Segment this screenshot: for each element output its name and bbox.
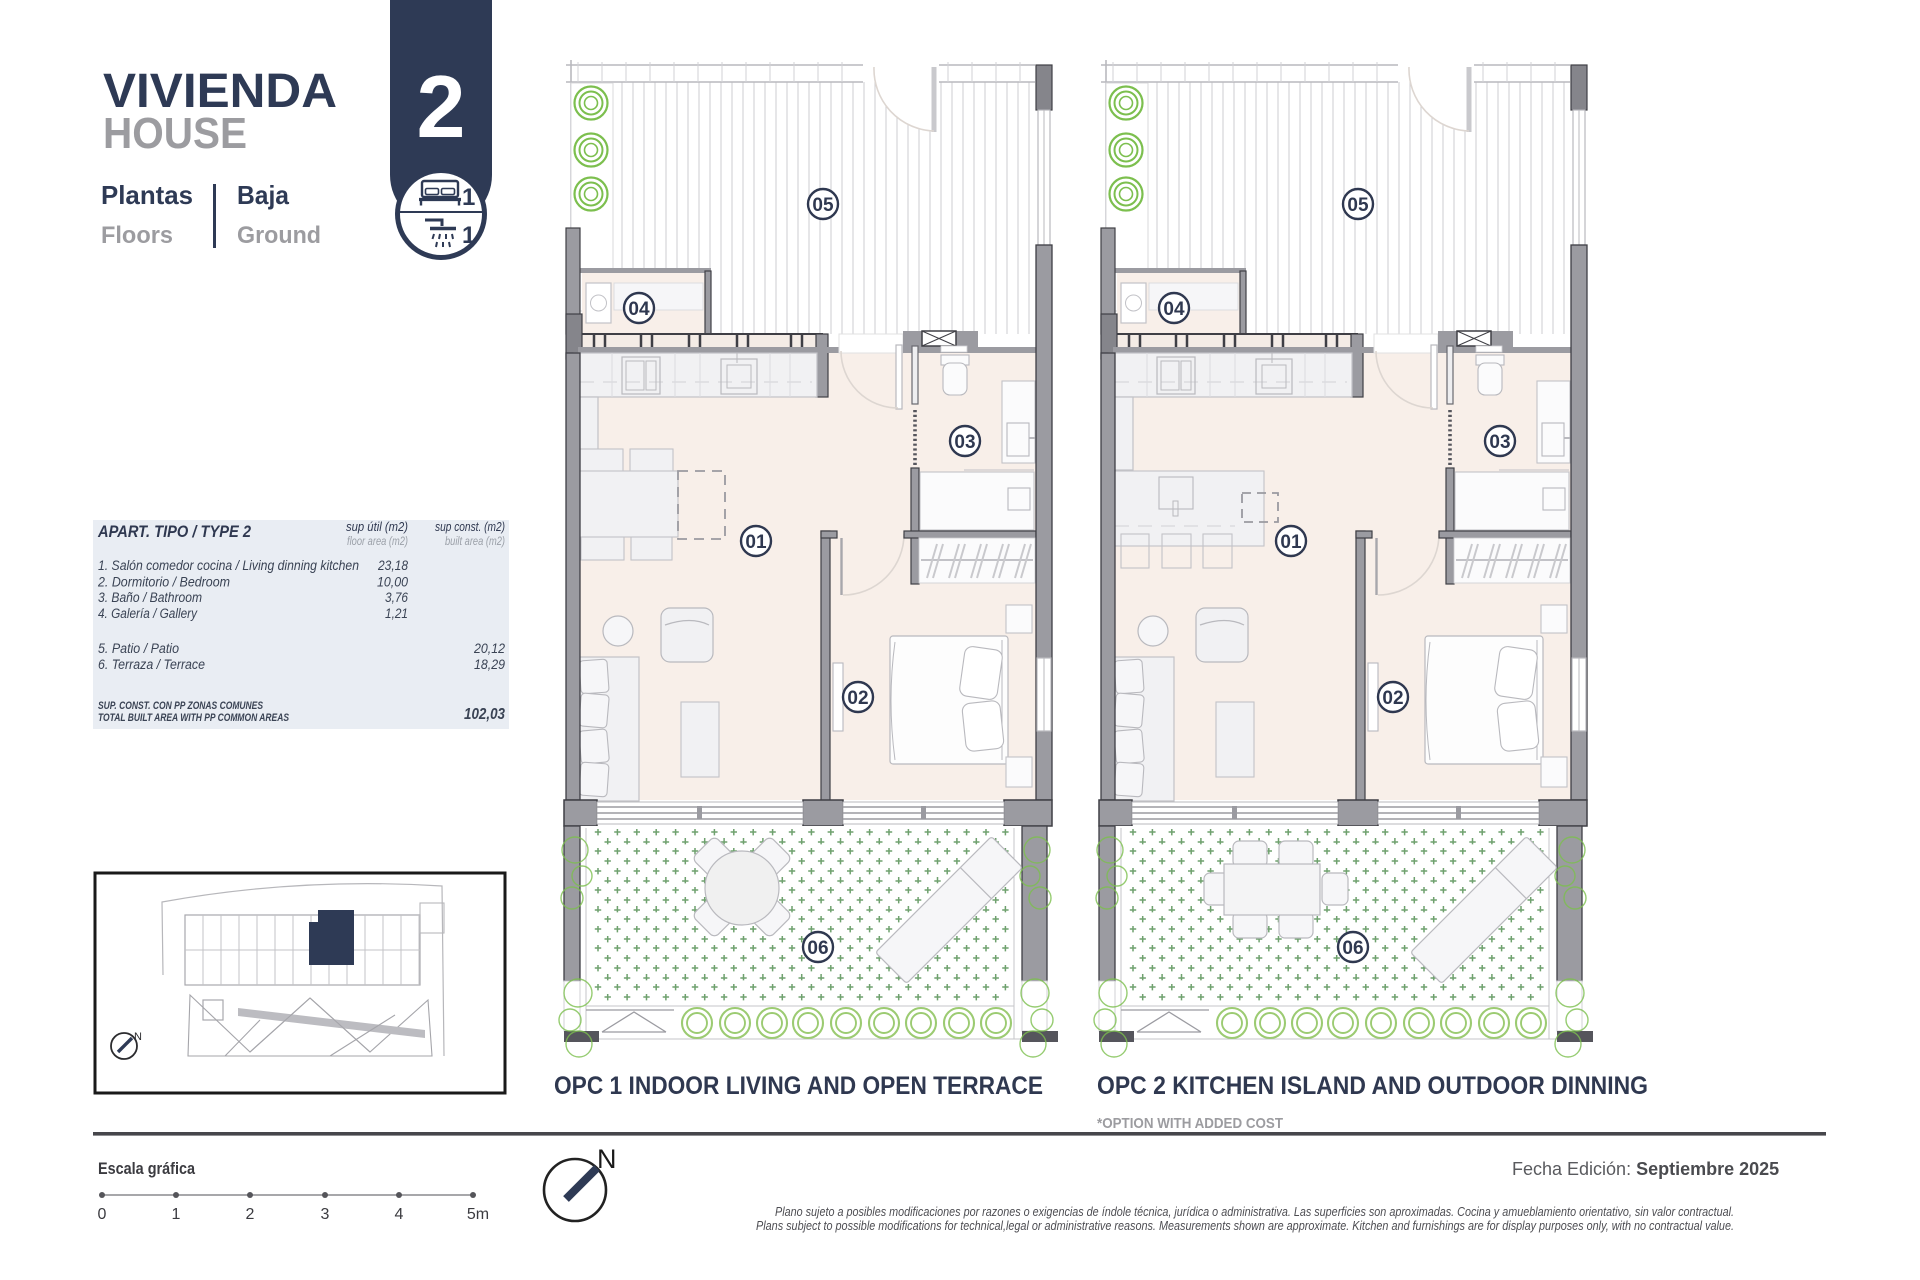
svg-text:6. Terraza / Terrace: 6. Terraza / Terrace xyxy=(98,657,205,672)
svg-text:5. Patio / Patio: 5. Patio / Patio xyxy=(98,641,179,656)
svg-text:05: 05 xyxy=(812,195,834,216)
svg-text:*OPTION WITH ADDED COST: *OPTION WITH ADDED COST xyxy=(1097,1115,1283,1132)
svg-text:sup const. (m2): sup const. (m2) xyxy=(435,519,505,534)
svg-text:N: N xyxy=(134,1031,142,1043)
svg-text:01: 01 xyxy=(1280,532,1302,553)
svg-text:23,18: 23,18 xyxy=(377,558,408,573)
svg-text:03: 03 xyxy=(954,432,975,453)
svg-text:5m: 5m xyxy=(467,1206,489,1223)
svg-text:floor area (m2): floor area (m2) xyxy=(347,534,408,548)
svg-text:Fecha Edición: Septiembre 2025: Fecha Edición: Septiembre 2025 xyxy=(1512,1159,1779,1179)
svg-text:1: 1 xyxy=(172,1206,181,1223)
svg-text:3: 3 xyxy=(321,1206,330,1223)
svg-text:1: 1 xyxy=(462,184,475,211)
svg-text:Ground: Ground xyxy=(237,222,321,249)
svg-text:Plano sujeto a posibles modifi: Plano sujeto a posibles modificaciones p… xyxy=(775,1205,1734,1219)
svg-text:3,76: 3,76 xyxy=(385,590,408,605)
svg-text:Plantas: Plantas xyxy=(101,180,193,210)
svg-text:OPC 1 INDOOR LIVING AND OPEN T: OPC 1 INDOOR LIVING AND OPEN TERRACE xyxy=(554,1072,1043,1100)
svg-text:0: 0 xyxy=(98,1206,107,1223)
svg-text:1. Salón comedor cocina / Livi: 1. Salón comedor cocina / Living dinning… xyxy=(98,558,359,573)
svg-text:N: N xyxy=(597,1144,617,1174)
svg-text:10,00: 10,00 xyxy=(377,575,408,590)
svg-text:02: 02 xyxy=(847,688,868,709)
svg-text:02: 02 xyxy=(1382,688,1403,709)
svg-text:built area (m2): built area (m2) xyxy=(445,534,505,548)
svg-text:06: 06 xyxy=(1342,938,1363,959)
svg-text:18,29: 18,29 xyxy=(474,657,505,672)
svg-text:06: 06 xyxy=(807,938,828,959)
svg-text:2: 2 xyxy=(417,57,466,156)
svg-text:SUP. CONST. CON PP ZONAS COMUN: SUP. CONST. CON PP ZONAS COMUNES xyxy=(98,700,264,712)
svg-text:Floors: Floors xyxy=(101,222,173,249)
svg-text:TOTAL BUILT AREA WITH PP COMMO: TOTAL BUILT AREA WITH PP COMMON AREAS xyxy=(98,712,290,724)
svg-text:04: 04 xyxy=(1163,299,1185,320)
svg-text:Plans subject to possible modi: Plans subject to possible modifications … xyxy=(756,1219,1734,1233)
svg-text:20,12: 20,12 xyxy=(473,641,505,656)
svg-text:4: 4 xyxy=(395,1206,404,1223)
svg-text:sup útil (m2): sup útil (m2) xyxy=(346,519,408,534)
svg-text:1,21: 1,21 xyxy=(385,606,408,621)
svg-text:01: 01 xyxy=(745,532,767,553)
svg-text:05: 05 xyxy=(1347,195,1369,216)
svg-text:4. Galería / Gallery: 4. Galería / Gallery xyxy=(98,606,198,621)
svg-text:03: 03 xyxy=(1489,432,1510,453)
svg-text:2: 2 xyxy=(246,1206,255,1223)
svg-text:Baja: Baja xyxy=(237,180,290,210)
svg-text:HOUSE: HOUSE xyxy=(103,109,247,158)
svg-text:Escala gráfica: Escala gráfica xyxy=(98,1159,195,1178)
svg-text:102,03: 102,03 xyxy=(464,706,505,723)
svg-text:OPC 2 KITCHEN ISLAND AND OUTDO: OPC 2 KITCHEN ISLAND AND OUTDOOR DINNING xyxy=(1097,1072,1648,1100)
svg-text:1: 1 xyxy=(462,222,475,249)
svg-text:3. Baño / Bathroom: 3. Baño / Bathroom xyxy=(98,590,202,605)
svg-text:APART. TIPO / TYPE 2: APART. TIPO / TYPE 2 xyxy=(97,522,251,541)
svg-text:04: 04 xyxy=(628,299,650,320)
svg-text:2. Dormitorio / Bedroom: 2. Dormitorio / Bedroom xyxy=(97,575,230,590)
